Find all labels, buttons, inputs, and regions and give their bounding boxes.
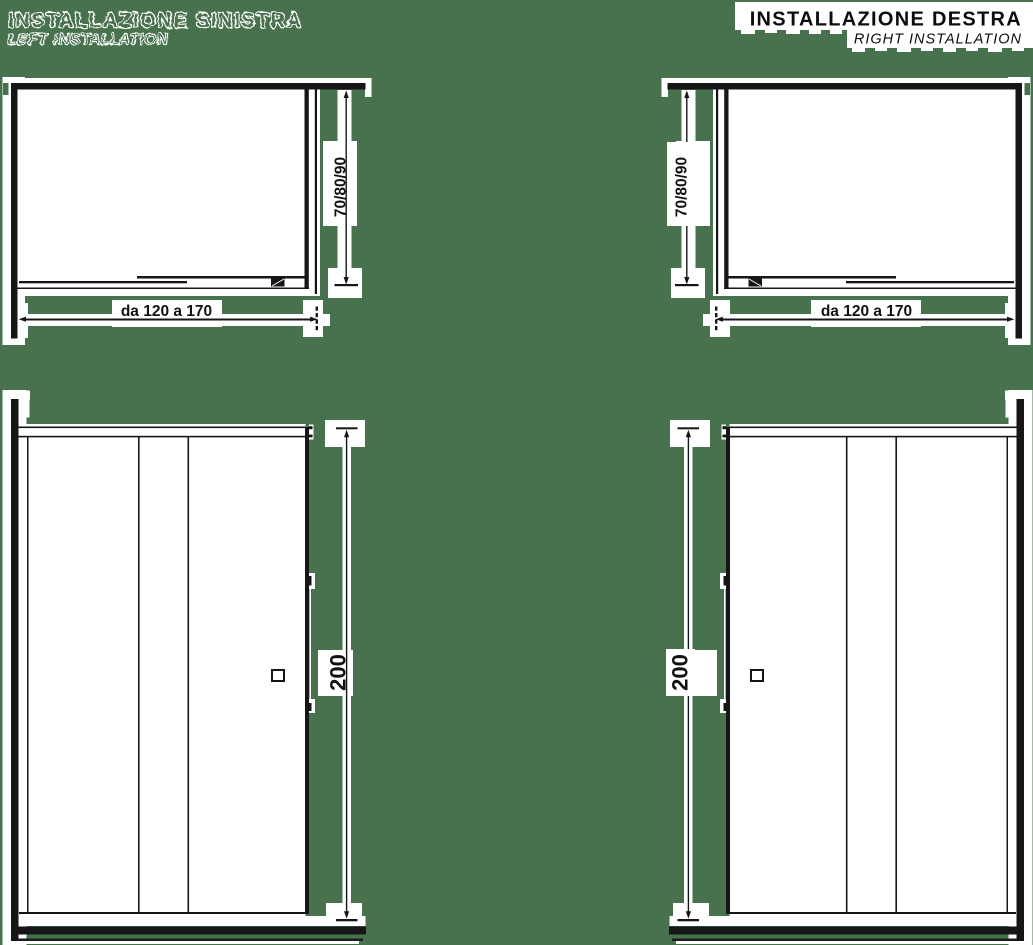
svg-text:da 120 a 170: da 120 a 170 xyxy=(121,303,212,320)
svg-text:RIGHT INSTALLATION: RIGHT INSTALLATION xyxy=(854,32,1022,48)
svg-text:da 120 a 170: da 120 a 170 xyxy=(821,303,912,320)
svg-text:LEFT INSTALLATION: LEFT INSTALLATION xyxy=(8,32,169,48)
svg-text:70/80/90: 70/80/90 xyxy=(332,157,349,217)
svg-text:INSTALLAZIONE SINISTRA: INSTALLAZIONE SINISTRA xyxy=(8,10,303,32)
svg-text:200: 200 xyxy=(326,654,351,691)
svg-text:70/80/90: 70/80/90 xyxy=(674,157,691,217)
svg-text:INSTALLAZIONE DESTRA: INSTALLAZIONE DESTRA xyxy=(750,9,1022,31)
svg-text:200: 200 xyxy=(668,654,693,691)
